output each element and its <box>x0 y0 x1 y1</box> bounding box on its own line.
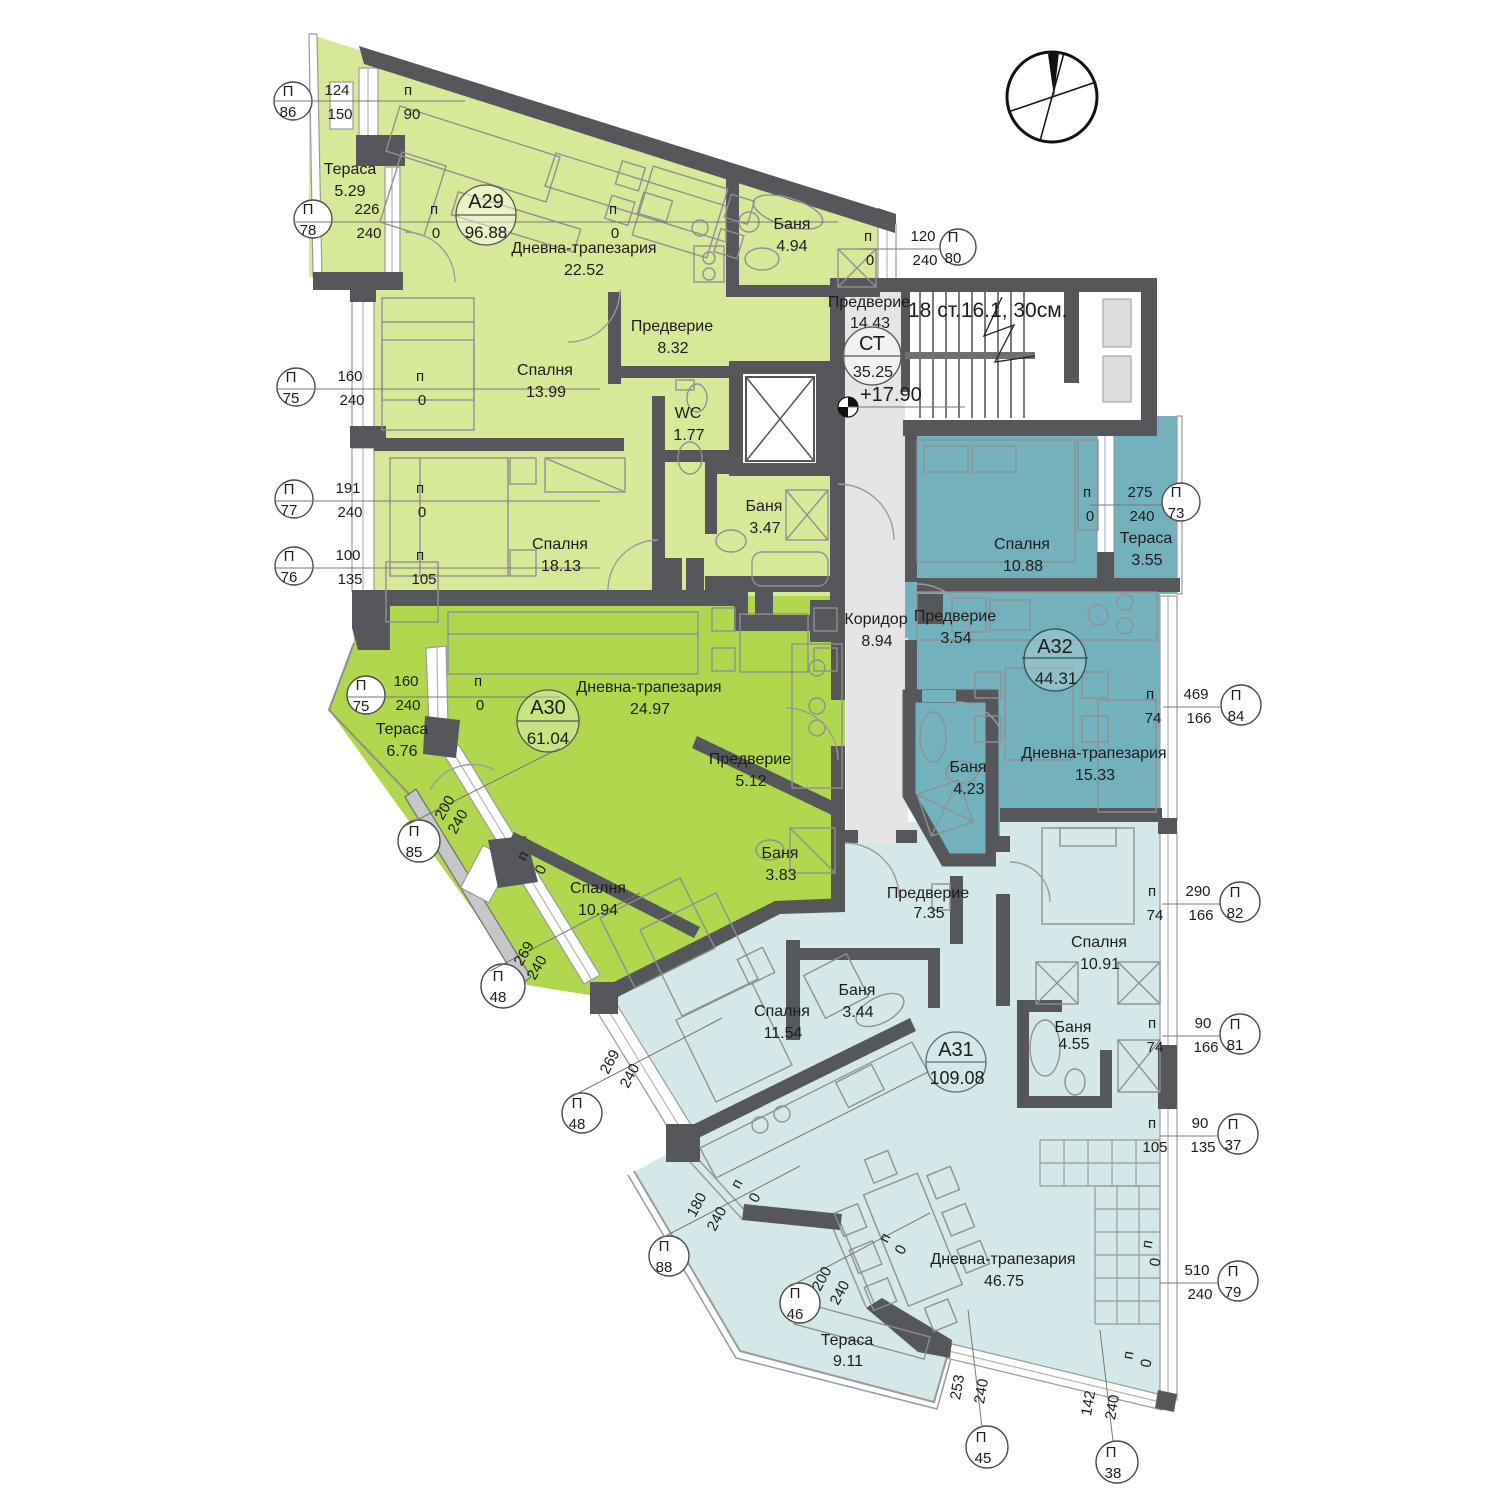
svg-text:А30: А30 <box>530 697 566 719</box>
svg-text:275: 275 <box>1127 484 1152 501</box>
svg-text:48: 48 <box>490 989 507 1006</box>
svg-text:160: 160 <box>393 673 418 690</box>
svg-text:48: 48 <box>569 1116 586 1133</box>
svg-text:3.54: 3.54 <box>940 630 971 647</box>
svg-text:22.52: 22.52 <box>564 262 604 279</box>
svg-text:5.29: 5.29 <box>334 183 365 200</box>
svg-text:240: 240 <box>912 252 937 269</box>
svg-text:П: П <box>572 1095 583 1112</box>
svg-text:135: 135 <box>1190 1139 1215 1156</box>
svg-text:75: 75 <box>353 698 370 715</box>
svg-text:П: П <box>284 481 295 498</box>
svg-text:77: 77 <box>281 502 298 519</box>
svg-text:П: П <box>283 83 294 100</box>
svg-text:226: 226 <box>354 201 379 218</box>
svg-text:4.94: 4.94 <box>776 238 807 255</box>
svg-text:240: 240 <box>395 697 420 714</box>
svg-text:Дневна-трапезария: Дневна-трапезария <box>576 679 721 696</box>
svg-text:100: 100 <box>335 547 360 564</box>
svg-text:П: П <box>1228 1116 1239 1133</box>
svg-text:10.91: 10.91 <box>1080 956 1120 973</box>
svg-text:0: 0 <box>432 225 440 242</box>
svg-text:18 ст.16.1, 30см.: 18 ст.16.1, 30см. <box>908 299 1068 322</box>
svg-text:80: 80 <box>945 250 962 267</box>
svg-text:П: П <box>976 1429 987 1446</box>
svg-text:п: п <box>416 547 424 564</box>
svg-text:п: п <box>416 480 424 497</box>
svg-text:45: 45 <box>975 1450 992 1467</box>
svg-text:Спалня: Спалня <box>570 880 626 897</box>
svg-text:3.83: 3.83 <box>765 867 796 884</box>
svg-text:46.75: 46.75 <box>984 1273 1024 1290</box>
svg-text:38: 38 <box>1105 1465 1122 1482</box>
svg-text:1.77: 1.77 <box>673 427 704 444</box>
svg-text:105: 105 <box>411 571 436 588</box>
svg-text:74: 74 <box>1147 1039 1164 1056</box>
svg-text:109.08: 109.08 <box>929 1068 984 1088</box>
svg-text:166: 166 <box>1186 710 1211 727</box>
svg-text:88: 88 <box>656 1259 673 1276</box>
svg-text:п: п <box>474 673 482 690</box>
svg-text:11.54: 11.54 <box>764 1025 803 1042</box>
svg-text:9.11: 9.11 <box>833 1353 863 1370</box>
svg-text:74: 74 <box>1147 907 1164 924</box>
svg-text:78: 78 <box>300 222 317 239</box>
svg-text:п: п <box>864 228 872 245</box>
svg-text:П: П <box>1230 1016 1241 1033</box>
svg-text:Тераса: Тераса <box>1120 530 1173 547</box>
svg-text:WC: WC <box>675 405 702 422</box>
svg-text:Коридор: Коридор <box>844 611 907 628</box>
svg-text:0: 0 <box>418 504 426 521</box>
svg-text:90: 90 <box>404 106 421 123</box>
svg-text:82: 82 <box>1227 905 1244 922</box>
svg-text:290: 290 <box>1185 883 1210 900</box>
svg-text:П: П <box>356 677 367 694</box>
svg-text:П: П <box>948 229 959 246</box>
svg-text:85: 85 <box>406 844 423 861</box>
svg-text:п: п <box>1148 1015 1156 1032</box>
svg-text:Спалня: Спалня <box>1071 934 1127 951</box>
svg-text:п: п <box>1146 686 1154 703</box>
svg-text:86: 86 <box>280 104 297 121</box>
svg-text:84: 84 <box>1228 708 1245 725</box>
svg-text:А32: А32 <box>1037 636 1073 658</box>
svg-text:Предверие: Предверие <box>914 608 996 625</box>
svg-text:73: 73 <box>1168 505 1185 522</box>
svg-text:Дневна-трапезария: Дневна-трапезария <box>930 1251 1075 1268</box>
svg-text:469: 469 <box>1183 686 1208 703</box>
svg-text:Спалня: Спалня <box>994 536 1050 553</box>
svg-text:П: П <box>409 823 420 840</box>
svg-text:Баня: Баня <box>762 845 799 862</box>
svg-text:79: 79 <box>1225 1284 1242 1301</box>
svg-text:44.31: 44.31 <box>1035 669 1078 688</box>
svg-text:150: 150 <box>327 106 352 123</box>
svg-text:13.99: 13.99 <box>526 384 566 401</box>
svg-text:Дневна-трапезария: Дневна-трапезария <box>1021 745 1166 762</box>
svg-text:15.33: 15.33 <box>1075 767 1115 784</box>
svg-text:74: 74 <box>1145 710 1162 727</box>
svg-text:П: П <box>1106 1444 1117 1461</box>
svg-text:А29: А29 <box>468 191 504 213</box>
svg-text:124: 124 <box>324 82 349 99</box>
svg-text:135: 135 <box>337 571 362 588</box>
svg-text:Тераса: Тераса <box>376 721 429 738</box>
svg-text:Спалня: Спалня <box>754 1003 810 1020</box>
svg-text:7.35: 7.35 <box>913 905 944 922</box>
svg-text:240: 240 <box>1187 1286 1212 1303</box>
svg-text:П: П <box>493 968 504 985</box>
svg-text:п: п <box>1083 484 1091 501</box>
svg-text:п: п <box>416 368 424 385</box>
svg-text:Тераса: Тераса <box>821 1332 874 1349</box>
svg-text:37: 37 <box>1225 1137 1242 1154</box>
svg-text:Баня: Баня <box>839 982 876 999</box>
svg-text:191: 191 <box>335 480 360 497</box>
svg-text:0: 0 <box>866 252 874 269</box>
svg-text:Дневна-трапезария: Дневна-трапезария <box>511 240 656 257</box>
svg-text:96.88: 96.88 <box>465 223 508 242</box>
svg-text:10.88: 10.88 <box>1003 558 1043 575</box>
svg-text:46: 46 <box>787 1306 804 1323</box>
svg-text:Спалня: Спалня <box>532 536 588 553</box>
svg-text:166: 166 <box>1188 907 1213 924</box>
svg-text:П: П <box>659 1238 670 1255</box>
svg-text:76: 76 <box>281 569 298 586</box>
svg-text:10.94: 10.94 <box>578 902 618 919</box>
svg-text:3.44: 3.44 <box>842 1004 873 1021</box>
svg-text:61.04: 61.04 <box>527 729 570 748</box>
svg-text:П: П <box>284 548 295 565</box>
svg-text:п: п <box>430 201 438 218</box>
svg-text:90: 90 <box>1195 1015 1212 1032</box>
svg-text:120: 120 <box>910 228 935 245</box>
svg-text:СТ: СТ <box>859 333 885 355</box>
svg-text:А31: А31 <box>938 1039 974 1061</box>
svg-text:Предверие: Предверие <box>631 318 713 335</box>
svg-text:3.55: 3.55 <box>1131 552 1162 569</box>
svg-text:П: П <box>286 369 297 386</box>
svg-text:П: П <box>790 1285 801 1302</box>
svg-text:18.13: 18.13 <box>541 558 581 575</box>
svg-text:3.47: 3.47 <box>749 520 780 537</box>
svg-text:п: п <box>1148 883 1156 900</box>
svg-text:Баня: Баня <box>746 498 783 515</box>
svg-text:4.55: 4.55 <box>1058 1036 1089 1053</box>
svg-text:0: 0 <box>476 697 484 714</box>
svg-text:8.94: 8.94 <box>861 633 892 650</box>
svg-text:240: 240 <box>337 504 362 521</box>
svg-text:Спалня: Спалня <box>517 362 573 379</box>
svg-text:81: 81 <box>1227 1037 1244 1054</box>
svg-text:п: п <box>1148 1115 1156 1132</box>
svg-text:0: 0 <box>1086 508 1094 525</box>
svg-text:105: 105 <box>1142 1139 1167 1156</box>
svg-text:Баня: Баня <box>1055 1019 1092 1036</box>
svg-text:Баня: Баня <box>950 759 987 776</box>
svg-text:п: п <box>609 201 617 218</box>
svg-text:160: 160 <box>337 368 362 385</box>
svg-text:240: 240 <box>339 392 364 409</box>
svg-text:6.76: 6.76 <box>386 743 417 760</box>
svg-text:П: П <box>303 201 314 218</box>
svg-text:+17.90: +17.90 <box>860 384 922 406</box>
svg-text:24.97: 24.97 <box>630 701 670 718</box>
svg-text:Предверие: Предверие <box>709 751 791 768</box>
svg-text:75: 75 <box>283 390 300 407</box>
svg-text:п: п <box>404 82 412 99</box>
svg-text:П: П <box>1171 484 1182 501</box>
svg-text:240: 240 <box>1129 508 1154 525</box>
svg-text:240: 240 <box>356 225 381 242</box>
svg-text:Предверие: Предверие <box>887 885 969 902</box>
svg-text:П: П <box>1231 687 1242 704</box>
svg-text:510: 510 <box>1184 1262 1209 1279</box>
svg-text:35.25: 35.25 <box>853 364 893 381</box>
svg-text:5.12: 5.12 <box>735 773 766 790</box>
svg-text:4.23: 4.23 <box>953 781 984 798</box>
svg-text:8.32: 8.32 <box>657 340 688 357</box>
svg-text:90: 90 <box>1192 1115 1209 1132</box>
svg-text:Предверие: Предверие <box>828 294 910 311</box>
svg-text:166: 166 <box>1193 1039 1218 1056</box>
svg-text:0: 0 <box>418 392 426 409</box>
svg-text:Баня: Баня <box>774 216 811 233</box>
svg-text:Тераса: Тераса <box>324 161 377 178</box>
svg-text:П: П <box>1230 884 1241 901</box>
svg-text:П: П <box>1228 1263 1239 1280</box>
